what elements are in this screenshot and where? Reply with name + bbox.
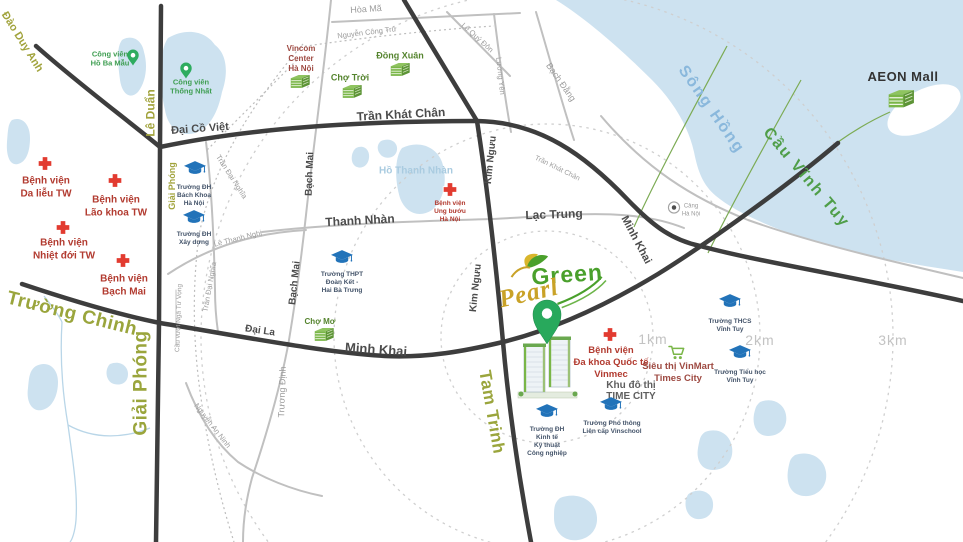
- bach-mai-truong-dinh-road: [243, 0, 331, 542]
- le-quy-don-road: [447, 12, 510, 76]
- thanh-nhan-lac-trung-road: [262, 214, 684, 232]
- le-thanh-nghi-road: [168, 230, 306, 274]
- bach-dang-road: [536, 12, 574, 140]
- kim-nguu-tam-trinh-road: [404, 0, 531, 542]
- map-canvas: [0, 0, 963, 542]
- hoa-ma-road: [332, 13, 520, 22]
- le-duan-giai-phong-road: [156, 6, 161, 542]
- green-pearl-towers: [518, 337, 578, 399]
- streams: [44, 296, 150, 542]
- tran-dai-nghia-road: [206, 142, 218, 332]
- railway-dotted: [194, 26, 494, 542]
- green-pearl-location-map[interactable]: Green Pearl Đào Duy AnhLê DuẩnGiải Phóng…: [0, 0, 963, 542]
- song-hong-river: [556, 0, 963, 272]
